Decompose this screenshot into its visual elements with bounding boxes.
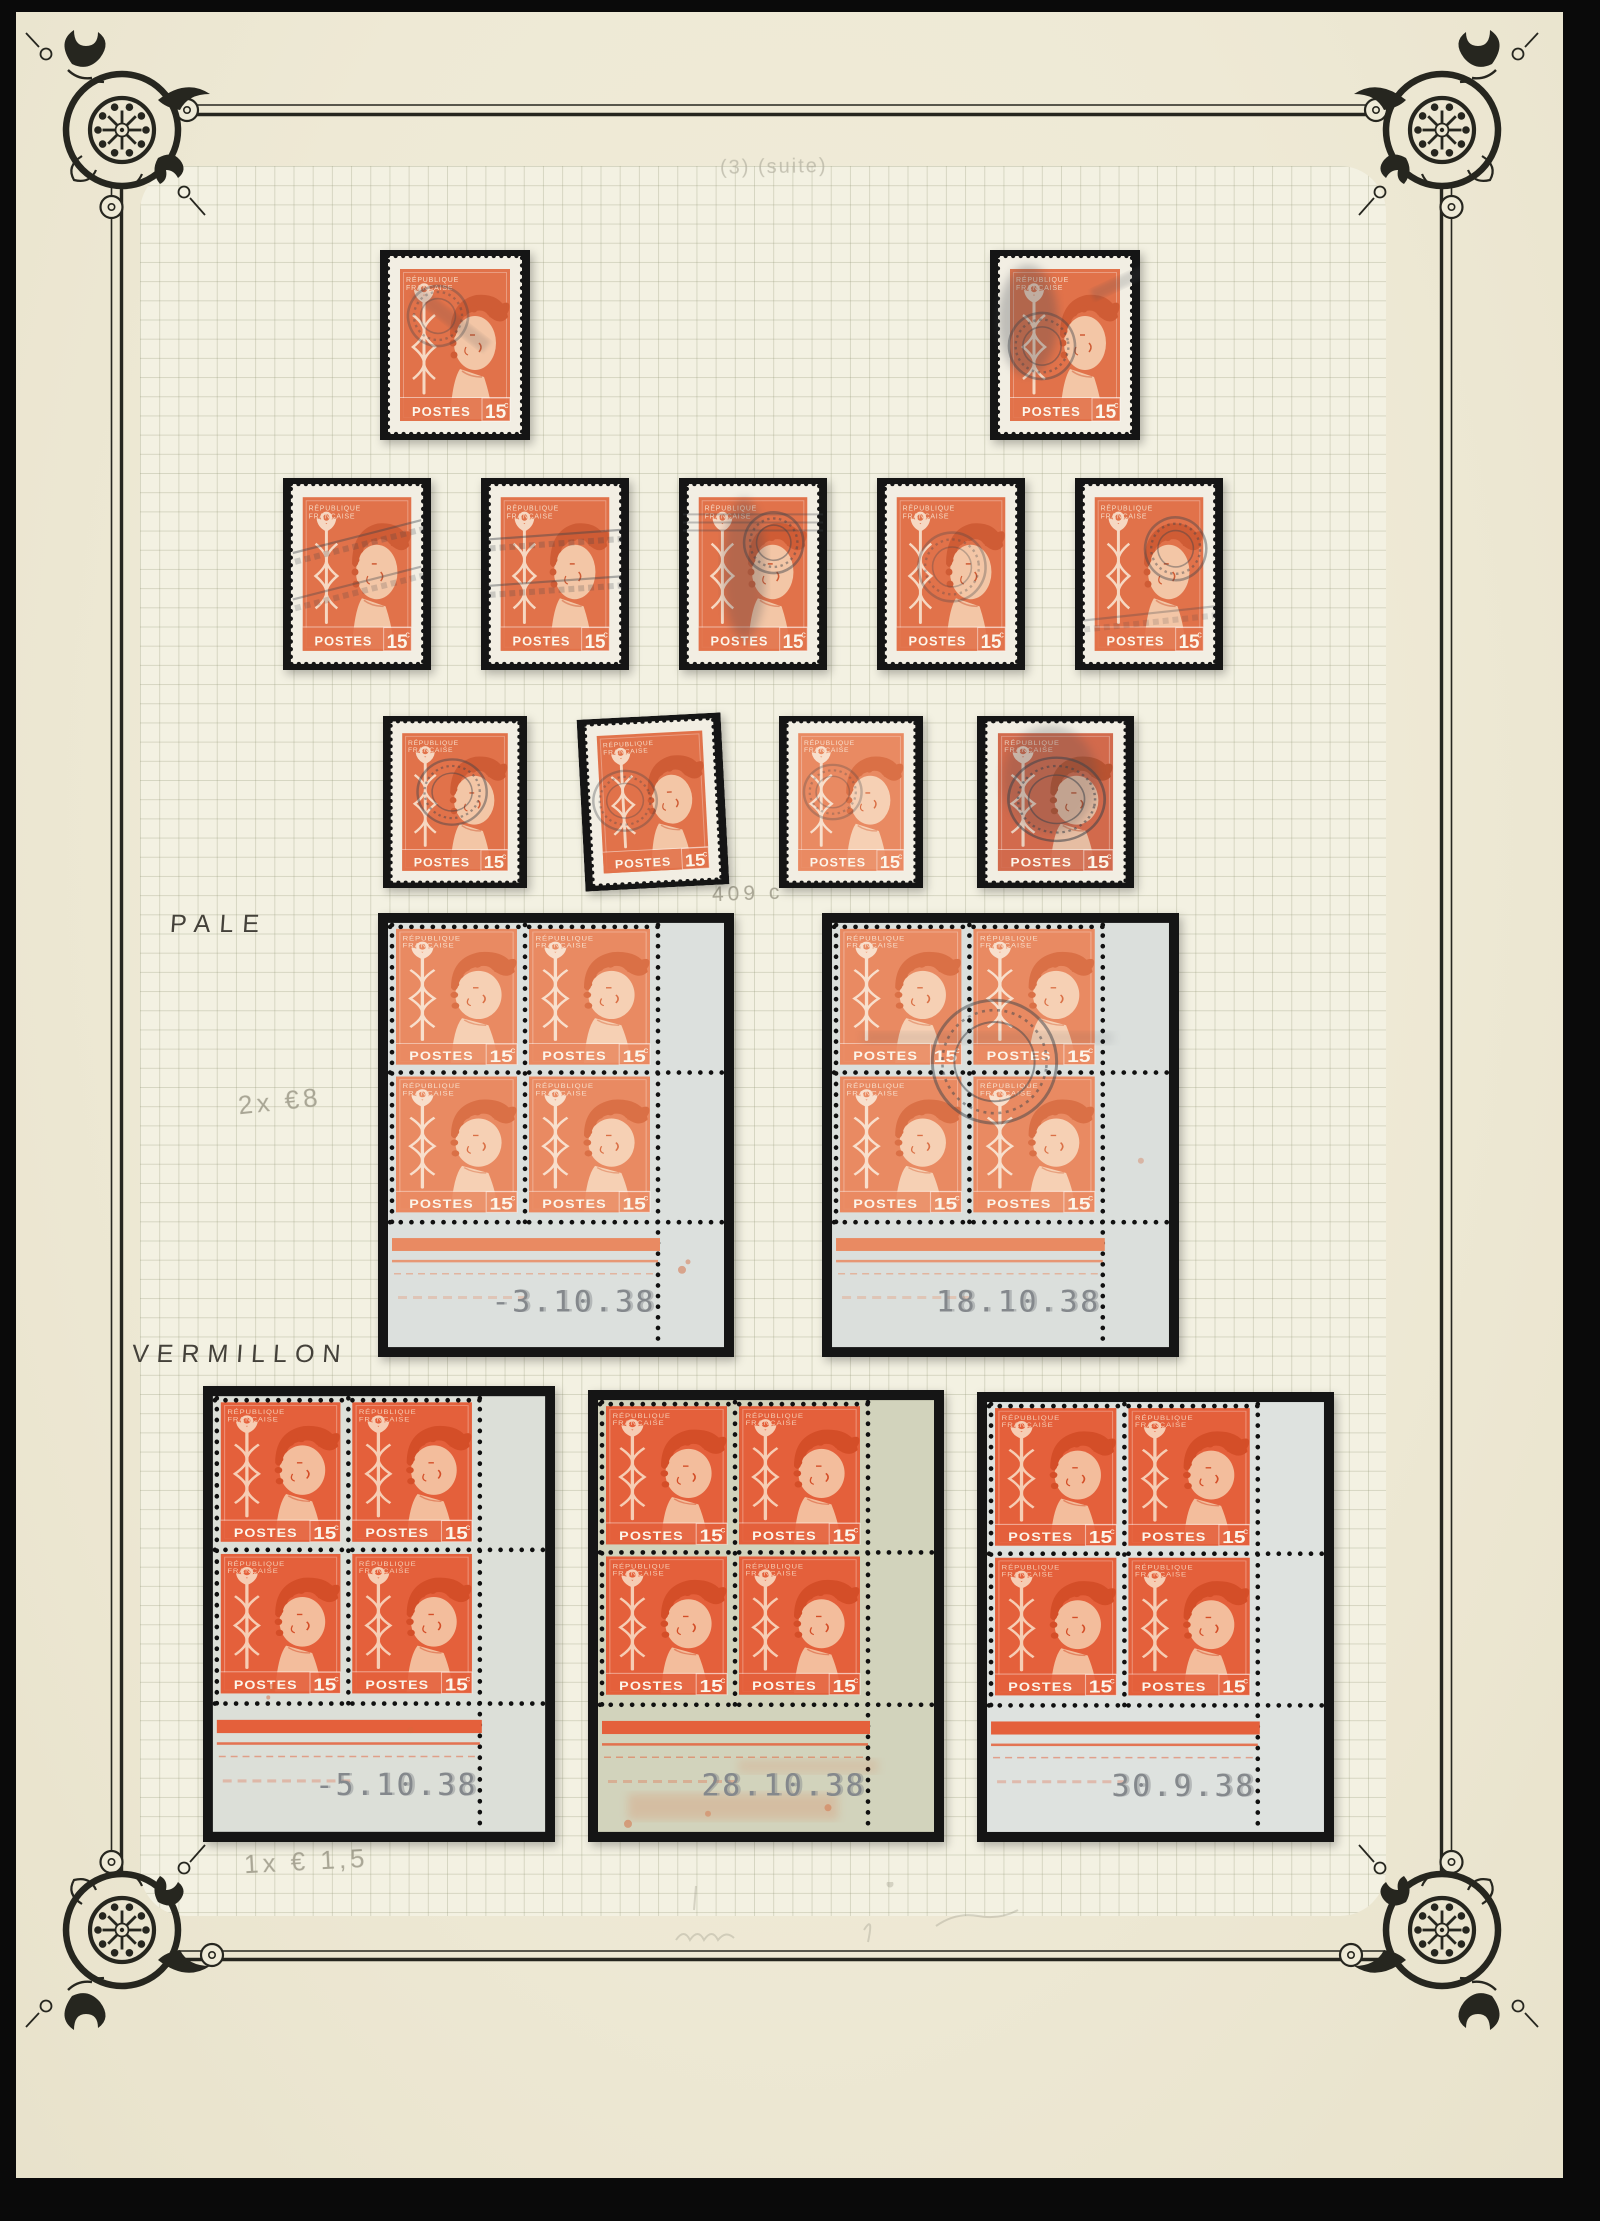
svg-text:c: c (1114, 400, 1119, 410)
svg-text:30.9.38: 30.9.38 (1112, 1769, 1256, 1804)
svg-text:POSTES: POSTES (315, 634, 373, 649)
svg-text:POSTES: POSTES (409, 1049, 474, 1062)
svg-text:RÉPUBLIQUE: RÉPUBLIQUE (403, 934, 461, 942)
svg-text:POSTES: POSTES (234, 1526, 298, 1540)
svg-text:c: c (720, 1525, 725, 1534)
svg-text:POSTES: POSTES (1010, 855, 1071, 869)
date-corner-block: RÉPUBLIQUE FRANÇAISE POSTES 15 c (378, 913, 734, 1357)
svg-text:POSTES: POSTES (1107, 634, 1165, 649)
svg-text:POSTES: POSTES (752, 1529, 817, 1543)
svg-text:18.10.38: 18.10.38 (936, 1285, 1101, 1320)
svg-text:c: c (720, 1676, 725, 1685)
svg-text:RÉPUBLIQUE: RÉPUBLIQUE (613, 1562, 671, 1570)
svg-text:c: c (643, 1194, 648, 1203)
single-stamp: RÉPUBLIQUE FRANÇAISE POSTES 15 c (283, 478, 431, 670)
svg-text:c: c (999, 630, 1004, 640)
svg-text:POSTES: POSTES (853, 1197, 918, 1210)
svg-text:-3.10.38: -3.10.38 (492, 1285, 656, 1320)
svg-text:c: c (334, 1674, 339, 1683)
svg-text:RÉPUBLIQUE: RÉPUBLIQUE (613, 1412, 671, 1420)
svg-text:c: c (853, 1525, 858, 1534)
svg-text:RÉPUBLIQUE: RÉPUBLIQUE (847, 1082, 906, 1090)
single-stamp: RÉPUBLIQUE FRANÇAISE POSTES 15 c (679, 478, 827, 670)
svg-text:RÉPUBLIQUE: RÉPUBLIQUE (980, 934, 1039, 942)
stamp-image: RÉPUBLIQUE FRANÇAISE POSTES 15 c (779, 716, 923, 888)
single-stamp: RÉPUBLIQUE FRANÇAISE POSTES 15 c (977, 716, 1134, 888)
date-corner-block: RÉPUBLIQUE FRANÇAISE POSTES 15 c (203, 1386, 555, 1842)
svg-text:15: 15 (1087, 852, 1109, 871)
svg-text:c: c (510, 1046, 515, 1055)
date-corner-block: RÉPUBLIQUE FRANÇAISE POSTES 15 c (977, 1392, 1334, 1842)
date-corner-block: RÉPUBLIQUE FRANÇAISE POSTES 15 c (588, 1390, 944, 1842)
svg-text:POSTES: POSTES (513, 634, 571, 649)
svg-text:POSTES: POSTES (619, 1679, 684, 1693)
svg-text:c: c (502, 851, 506, 861)
svg-text:RÉPUBLIQUE: RÉPUBLIQUE (408, 738, 459, 747)
svg-text:POSTES: POSTES (752, 1679, 817, 1693)
svg-text:RÉPUBLIQUE: RÉPUBLIQUE (1101, 503, 1153, 512)
stamp-image: RÉPUBLIQUE FRANÇAISE POSTES 15 c (383, 716, 527, 888)
svg-text:c: c (853, 1676, 858, 1685)
block-image: RÉPUBLIQUE FRANÇAISE POSTES 15 c (822, 913, 1179, 1357)
stamp-image: RÉPUBLIQUE FRANÇAISE POSTES 15 c (1075, 478, 1223, 670)
scan-edge-top (0, 0, 1600, 12)
svg-text:28.10.38: 28.10.38 (702, 1768, 866, 1803)
svg-text:c: c (334, 1522, 339, 1531)
svg-text:c: c (465, 1674, 470, 1683)
svg-text:POSTES: POSTES (234, 1678, 298, 1692)
svg-text:c: c (955, 1194, 960, 1203)
single-stamp: RÉPUBLIQUE FRANÇAISE POSTES 15 c (577, 712, 730, 891)
svg-text:POSTES: POSTES (542, 1197, 607, 1210)
svg-text:c: c (405, 630, 410, 640)
svg-text:RÉPUBLIQUE: RÉPUBLIQUE (1002, 1563, 1060, 1571)
stamp-image: RÉPUBLIQUE FRANÇAISE POSTES 15 c (577, 712, 730, 891)
svg-text:POSTES: POSTES (810, 856, 866, 870)
stamp-image: RÉPUBLIQUE FRANÇAISE POSTES 15 c (977, 716, 1134, 888)
single-stamp: RÉPUBLIQUE FRANÇAISE POSTES 15 c (990, 250, 1140, 440)
single-stamp: RÉPUBLIQUE FRANÇAISE POSTES 15 c (1075, 478, 1223, 670)
svg-text:RÉPUBLIQUE: RÉPUBLIQUE (847, 934, 906, 942)
svg-text:POSTES: POSTES (414, 856, 470, 870)
svg-text:RÉPUBLIQUE: RÉPUBLIQUE (536, 934, 594, 942)
single-stamp: RÉPUBLIQUE FRANÇAISE POSTES 15 c (779, 716, 923, 888)
svg-text:c: c (1107, 852, 1112, 861)
svg-text:RÉPUBLIQUE: RÉPUBLIQUE (804, 738, 855, 747)
svg-text:c: c (703, 849, 708, 859)
svg-text:RÉPUBLIQUE: RÉPUBLIQUE (1135, 1563, 1193, 1571)
svg-text:c: c (801, 630, 806, 640)
svg-text:POSTES: POSTES (987, 1049, 1052, 1062)
svg-text:RÉPUBLIQUE: RÉPUBLIQUE (1135, 1414, 1193, 1422)
svg-text:POSTES: POSTES (412, 404, 471, 419)
svg-text:c: c (1088, 1194, 1093, 1203)
block-image: RÉPUBLIQUE FRANÇAISE POSTES 15 c (588, 1390, 944, 1842)
block-image: RÉPUBLIQUE FRANÇAISE POSTES 15 c (203, 1386, 555, 1842)
svg-text:POSTES: POSTES (542, 1049, 607, 1062)
scan-edge-left (0, 0, 16, 2221)
stamp-image: RÉPUBLIQUE FRANÇAISE POSTES 15 c (481, 478, 629, 670)
svg-text:RÉPUBLIQUE: RÉPUBLIQUE (359, 1559, 417, 1567)
svg-text:RÉPUBLIQUE: RÉPUBLIQUE (903, 503, 955, 512)
scan-edge-bottom (0, 2178, 1600, 2221)
svg-text:c: c (1197, 630, 1202, 640)
svg-text:RÉPUBLIQUE: RÉPUBLIQUE (746, 1562, 804, 1570)
svg-text:c: c (898, 851, 902, 861)
svg-text:RÉPUBLIQUE: RÉPUBLIQUE (746, 1412, 804, 1420)
svg-text:c: c (1110, 1527, 1115, 1536)
stamp-image: RÉPUBLIQUE FRANÇAISE POSTES 15 c (380, 250, 530, 440)
svg-text:c: c (510, 1194, 515, 1203)
svg-text:POSTES: POSTES (365, 1526, 429, 1540)
svg-text:RÉPUBLIQUE: RÉPUBLIQUE (309, 503, 361, 512)
svg-text:POSTES: POSTES (1142, 1530, 1207, 1543)
svg-text:POSTES: POSTES (909, 634, 967, 649)
single-stamp: RÉPUBLIQUE FRANÇAISE POSTES 15 c (481, 478, 629, 670)
svg-text:POSTES: POSTES (1142, 1680, 1207, 1693)
svg-text:POSTES: POSTES (409, 1197, 474, 1210)
stamp-image: RÉPUBLIQUE FRANÇAISE POSTES 15 c (283, 478, 431, 670)
svg-text:RÉPUBLIQUE: RÉPUBLIQUE (359, 1408, 417, 1416)
svg-text:RÉPUBLIQUE: RÉPUBLIQUE (536, 1082, 594, 1090)
stamp-image: RÉPUBLIQUE FRANÇAISE POSTES 15 c (990, 250, 1140, 440)
svg-text:POSTES: POSTES (1008, 1680, 1073, 1693)
svg-text:POSTES: POSTES (365, 1678, 429, 1692)
single-stamp: RÉPUBLIQUE FRANÇAISE POSTES 15 c (877, 478, 1025, 670)
date-corner-block: RÉPUBLIQUE FRANÇAISE POSTES 15 c (822, 913, 1179, 1357)
svg-text:POSTES: POSTES (853, 1049, 918, 1062)
svg-text:c: c (465, 1522, 470, 1531)
svg-text:RÉPUBLIQUE: RÉPUBLIQUE (1002, 1414, 1060, 1422)
svg-text:POSTES: POSTES (1008, 1530, 1073, 1543)
svg-text:c: c (643, 1046, 648, 1055)
album-page-scan: (3) (suite) PALE 2x €8 409 c VERMILLON 1… (0, 0, 1600, 2221)
svg-text:RÉPUBLIQUE: RÉPUBLIQUE (406, 275, 459, 284)
stamps-layer: RÉPUBLIQUE FRANÇAISE POSTES 15 c (0, 0, 1600, 2221)
svg-text:RÉPUBLIQUE: RÉPUBLIQUE (403, 1082, 461, 1090)
single-stamp: RÉPUBLIQUE FRANÇAISE POSTES 15 c (383, 716, 527, 888)
svg-text:RÉPUBLIQUE: RÉPUBLIQUE (507, 503, 559, 512)
svg-text:POSTES: POSTES (987, 1197, 1052, 1210)
svg-text:c: c (504, 400, 509, 410)
scan-edge-right (1563, 0, 1600, 2221)
svg-text:-5.10.38: -5.10.38 (315, 1768, 478, 1804)
block-image: RÉPUBLIQUE FRANÇAISE POSTES 15 c (378, 913, 734, 1357)
svg-text:POSTES: POSTES (1022, 404, 1081, 419)
single-stamp: RÉPUBLIQUE FRANÇAISE POSTES 15 c (380, 250, 530, 440)
block-image: RÉPUBLIQUE FRANÇAISE POSTES 15 c (977, 1392, 1334, 1842)
svg-text:POSTES: POSTES (619, 1529, 684, 1543)
svg-text:c: c (1110, 1676, 1115, 1685)
svg-text:c: c (603, 630, 608, 640)
svg-text:c: c (1243, 1676, 1248, 1685)
svg-text:c: c (1243, 1527, 1248, 1536)
svg-text:RÉPUBLIQUE: RÉPUBLIQUE (227, 1408, 285, 1416)
stamp-image: RÉPUBLIQUE FRANÇAISE POSTES 15 c (679, 478, 827, 670)
svg-text:RÉPUBLIQUE: RÉPUBLIQUE (980, 1082, 1039, 1090)
svg-text:RÉPUBLIQUE: RÉPUBLIQUE (227, 1559, 285, 1567)
stamp-image: RÉPUBLIQUE FRANÇAISE POSTES 15 c (877, 478, 1025, 670)
svg-text:c: c (1088, 1046, 1093, 1055)
